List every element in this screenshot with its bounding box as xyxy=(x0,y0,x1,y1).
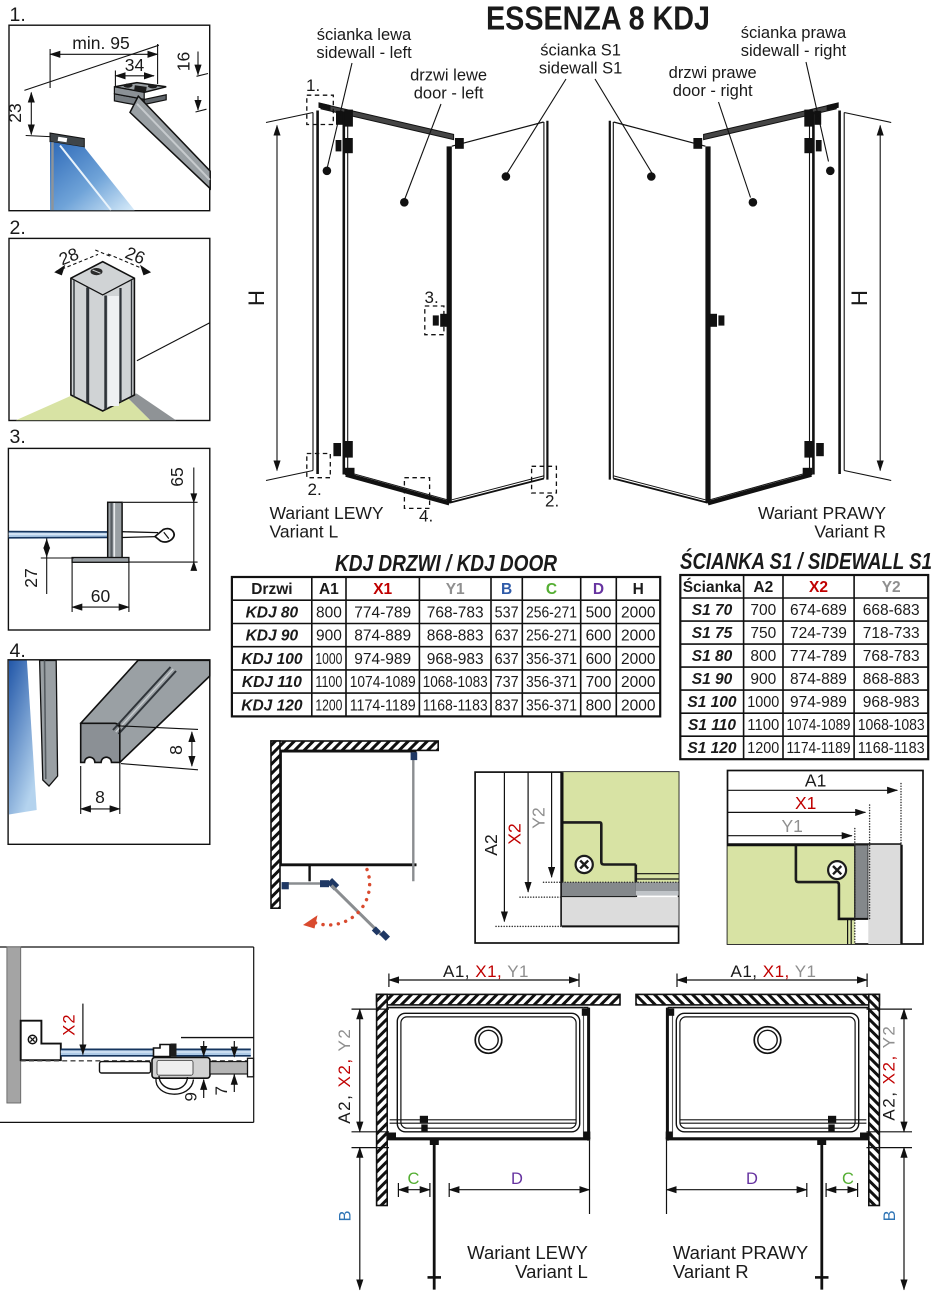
svg-text:A2: A2 xyxy=(753,579,773,596)
svg-text:A1: A1 xyxy=(805,771,826,791)
svg-text:X1: X1 xyxy=(795,793,816,813)
svg-text:2.: 2. xyxy=(308,480,322,499)
svg-text:H: H xyxy=(244,290,269,306)
svg-text:C: C xyxy=(842,1170,854,1188)
svg-text:1000: 1000 xyxy=(747,694,779,711)
svg-text:500: 500 xyxy=(586,604,612,621)
svg-text:60: 60 xyxy=(91,586,111,606)
svg-text:sidewall - left: sidewall - left xyxy=(316,44,412,62)
svg-text:874-889: 874-889 xyxy=(354,628,411,645)
svg-text:1000: 1000 xyxy=(315,651,342,668)
svg-text:537: 537 xyxy=(495,604,519,621)
svg-text:16: 16 xyxy=(174,52,194,71)
svg-text:X2: X2 xyxy=(809,579,828,596)
svg-text:1168-1183: 1168-1183 xyxy=(858,740,925,757)
svg-text:974-989: 974-989 xyxy=(790,694,847,711)
svg-text:700: 700 xyxy=(586,674,612,691)
svg-text:1074-1089: 1074-1089 xyxy=(787,717,851,734)
svg-text:28: 28 xyxy=(56,244,82,270)
svg-text:800: 800 xyxy=(586,697,612,714)
svg-text:8: 8 xyxy=(166,745,186,755)
svg-text:drzwi lewe: drzwi lewe xyxy=(410,67,487,85)
svg-text:S1 110: S1 110 xyxy=(688,717,736,734)
svg-text:B: B xyxy=(337,1210,355,1221)
svg-text:2000: 2000 xyxy=(621,674,656,691)
svg-text:S1 120: S1 120 xyxy=(687,740,737,757)
svg-text:KDJ 80: KDJ 80 xyxy=(246,604,299,621)
svg-text:D: D xyxy=(593,581,604,598)
svg-text:B: B xyxy=(881,1210,899,1221)
svg-text:768-783: 768-783 xyxy=(863,648,920,665)
svg-text:1068-1083: 1068-1083 xyxy=(423,674,488,691)
svg-text:B: B xyxy=(501,581,512,598)
svg-text:600: 600 xyxy=(586,651,612,668)
svg-text:900: 900 xyxy=(316,628,342,645)
svg-text:KDJ 110: KDJ 110 xyxy=(242,674,302,691)
svg-text:H: H xyxy=(633,581,644,598)
svg-text:A2: A2 xyxy=(481,834,501,855)
svg-text:2.: 2. xyxy=(10,217,26,239)
svg-text:ścianka prawa: ścianka prawa xyxy=(741,24,847,42)
svg-text:2000: 2000 xyxy=(621,628,656,645)
svg-text:4.: 4. xyxy=(419,507,433,526)
svg-text:600: 600 xyxy=(586,628,612,645)
svg-text:Variant L: Variant L xyxy=(515,1261,588,1282)
svg-text:724-739: 724-739 xyxy=(790,625,847,642)
svg-text:7: 7 xyxy=(212,1086,231,1095)
svg-text:sidewall S1: sidewall S1 xyxy=(539,60,622,78)
svg-text:65: 65 xyxy=(167,467,187,486)
svg-text:2000: 2000 xyxy=(621,651,656,668)
svg-text:968-983: 968-983 xyxy=(863,694,920,711)
svg-text:868-883: 868-883 xyxy=(863,671,920,688)
svg-text:356-371: 356-371 xyxy=(526,674,577,691)
svg-text:door - left: door - left xyxy=(414,85,484,103)
svg-text:674-689: 674-689 xyxy=(790,602,847,619)
svg-text:837: 837 xyxy=(495,697,519,714)
svg-text:Wariant LEWY: Wariant LEWY xyxy=(270,503,384,523)
svg-text:A1: A1 xyxy=(319,581,339,598)
svg-text:A2, X2, Y2: A2, X2, Y2 xyxy=(880,1025,899,1121)
svg-text:2.: 2. xyxy=(545,492,559,511)
svg-text:800: 800 xyxy=(316,604,342,621)
svg-text:S1 70: S1 70 xyxy=(692,602,733,619)
svg-text:Wariant LEWY: Wariant LEWY xyxy=(467,1242,588,1263)
svg-text:750: 750 xyxy=(750,625,776,642)
svg-text:H: H xyxy=(847,290,872,306)
svg-text:9: 9 xyxy=(182,1092,201,1101)
svg-text:637: 637 xyxy=(495,628,519,645)
svg-text:X2: X2 xyxy=(505,823,525,844)
svg-text:1200: 1200 xyxy=(315,697,342,714)
svg-text:974-989: 974-989 xyxy=(354,651,411,668)
svg-text:1168-1183: 1168-1183 xyxy=(423,697,488,714)
svg-text:874-889: 874-889 xyxy=(790,671,847,688)
svg-text:1074-1089: 1074-1089 xyxy=(350,674,416,691)
svg-text:A1, X1, Y1: A1, X1, Y1 xyxy=(443,962,529,981)
svg-text:X1: X1 xyxy=(373,581,392,598)
svg-text:868-883: 868-883 xyxy=(427,628,484,645)
svg-text:KDJ DRZWI / KDJ DOOR: KDJ DRZWI / KDJ DOOR xyxy=(335,550,557,576)
svg-text:3.: 3. xyxy=(10,426,26,448)
svg-text:KDJ 120: KDJ 120 xyxy=(241,697,303,714)
svg-text:sidewall - right: sidewall - right xyxy=(741,42,847,60)
svg-text:ścianka S1: ścianka S1 xyxy=(540,42,621,60)
svg-text:26: 26 xyxy=(122,243,148,269)
svg-text:2000: 2000 xyxy=(621,697,656,714)
svg-text:8: 8 xyxy=(95,787,105,807)
svg-text:Y1: Y1 xyxy=(446,581,465,598)
svg-text:774-789: 774-789 xyxy=(790,648,847,665)
svg-text:718-733: 718-733 xyxy=(863,625,920,642)
svg-text:Variant R: Variant R xyxy=(814,522,886,542)
svg-text:2000: 2000 xyxy=(621,604,656,621)
svg-text:1.: 1. xyxy=(10,4,26,26)
svg-text:1174-1189: 1174-1189 xyxy=(350,697,416,714)
svg-text:Y2: Y2 xyxy=(528,807,548,828)
svg-text:ESSENZA 8 KDJ: ESSENZA 8 KDJ xyxy=(486,0,710,37)
svg-text:C: C xyxy=(408,1170,420,1188)
svg-text:700: 700 xyxy=(750,602,776,619)
svg-text:774-789: 774-789 xyxy=(354,604,411,621)
svg-text:KDJ 100: KDJ 100 xyxy=(241,651,303,668)
svg-text:Wariant PRAWY: Wariant PRAWY xyxy=(673,1242,808,1263)
svg-text:356-371: 356-371 xyxy=(526,651,577,668)
svg-text:drzwi prawe: drzwi prawe xyxy=(669,64,757,82)
svg-text:1100: 1100 xyxy=(315,674,342,691)
svg-text:S1 100: S1 100 xyxy=(687,694,737,711)
svg-text:1068-1083: 1068-1083 xyxy=(858,717,925,734)
svg-text:Wariant PRAWY: Wariant PRAWY xyxy=(758,503,886,523)
svg-text:Variant L: Variant L xyxy=(270,522,339,542)
svg-text:968-983: 968-983 xyxy=(427,651,484,668)
svg-text:256-271: 256-271 xyxy=(526,604,577,621)
svg-text:1200: 1200 xyxy=(747,740,779,757)
svg-text:D: D xyxy=(746,1170,758,1188)
svg-text:1.: 1. xyxy=(306,76,320,95)
svg-text:3.: 3. xyxy=(425,288,439,307)
svg-text:737: 737 xyxy=(495,674,519,691)
svg-text:A1, X1, Y1: A1, X1, Y1 xyxy=(731,962,817,981)
svg-text:A2, X2, Y2: A2, X2, Y2 xyxy=(335,1028,354,1124)
svg-text:4.: 4. xyxy=(10,640,26,662)
svg-text:34: 34 xyxy=(125,55,145,75)
svg-text:356-371: 356-371 xyxy=(526,697,577,714)
svg-text:800: 800 xyxy=(750,648,776,665)
svg-text:KDJ 90: KDJ 90 xyxy=(246,628,299,645)
svg-text:Y1: Y1 xyxy=(781,816,802,836)
svg-text:256-271: 256-271 xyxy=(526,628,577,645)
svg-text:C: C xyxy=(546,581,557,598)
svg-text:Ścianka: Ścianka xyxy=(683,578,742,596)
svg-text:900: 900 xyxy=(750,671,776,688)
svg-text:X2: X2 xyxy=(61,1014,79,1036)
svg-text:23: 23 xyxy=(5,103,25,122)
svg-text:Y2: Y2 xyxy=(882,579,901,596)
svg-text:27: 27 xyxy=(21,568,41,587)
svg-text:Variant R: Variant R xyxy=(673,1261,749,1282)
svg-text:768-783: 768-783 xyxy=(427,604,484,621)
svg-text:S1 90: S1 90 xyxy=(692,671,733,688)
svg-text:S1 80: S1 80 xyxy=(692,648,733,665)
svg-text:S1 75: S1 75 xyxy=(692,625,733,642)
svg-text:Drzwi: Drzwi xyxy=(251,581,292,598)
svg-text:ŚCIANKA S1 / SIDEWALL S1: ŚCIANKA S1 / SIDEWALL S1 xyxy=(680,547,932,574)
svg-text:ścianka lewa: ścianka lewa xyxy=(317,26,412,44)
svg-text:D: D xyxy=(511,1170,523,1188)
svg-text:min. 95: min. 95 xyxy=(72,33,129,53)
svg-text:668-683: 668-683 xyxy=(863,602,920,619)
svg-text:1100: 1100 xyxy=(747,717,779,734)
svg-text:637: 637 xyxy=(495,651,519,668)
svg-text:1174-1189: 1174-1189 xyxy=(787,740,851,757)
svg-text:door - right: door - right xyxy=(673,82,753,100)
